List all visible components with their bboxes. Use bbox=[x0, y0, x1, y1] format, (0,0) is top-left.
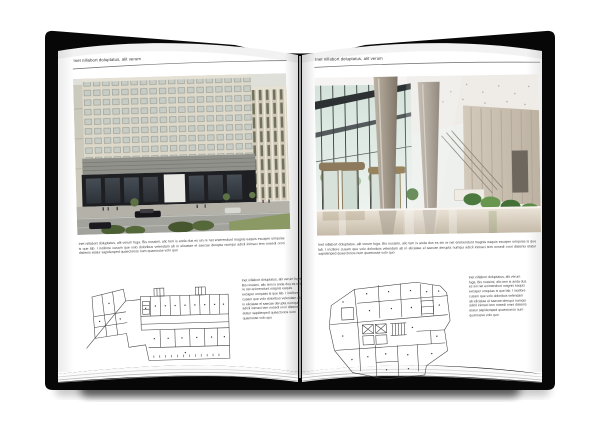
book-mockup-scene: Inet nillabort doluptatus, alit verum bbox=[0, 0, 600, 446]
right-floor-plan bbox=[322, 275, 460, 387]
left-plan-row: Inet nillabort doluptatus, alit verum fu… bbox=[85, 274, 309, 372]
left-side-text: Inet nillabort doluptatus, alit verum fu… bbox=[242, 277, 305, 321]
main-building bbox=[79, 74, 257, 207]
left-caption: Inet nillabort doluptatus, alit verum fu… bbox=[79, 236, 285, 256]
right-page: Inet nillabort doluptatus, alit verum bbox=[306, 40, 551, 387]
left-page: Inet nillabort doluptatus, alit verum bbox=[62, 39, 309, 373]
right-side-text: Inet nillabort doluptatus, alit verum fu… bbox=[469, 275, 528, 318]
left-floor-plan bbox=[85, 276, 236, 372]
right-plan-row: Inet nillabort doluptatus, alit verum fu… bbox=[322, 273, 552, 387]
right-caption: Inet nillabort doluptatus, alit verum fu… bbox=[318, 239, 536, 256]
lobby-interior-photo bbox=[315, 74, 541, 235]
building-exterior-photo bbox=[73, 73, 290, 235]
